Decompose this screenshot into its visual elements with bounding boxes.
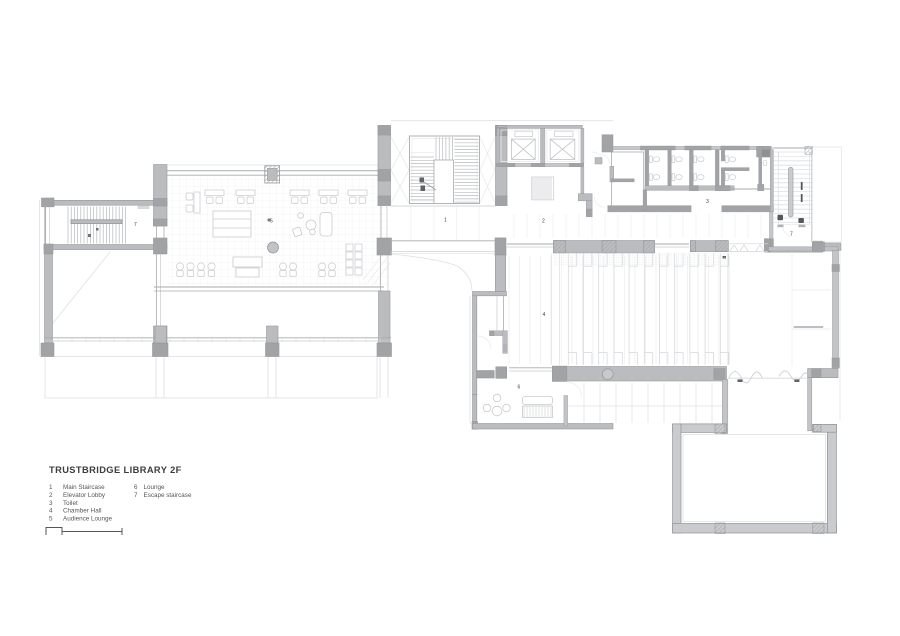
- svg-text:7: 7: [134, 492, 138, 499]
- svg-text:6: 6: [134, 484, 138, 491]
- svg-text:Elevator Lobby: Elevator Lobby: [63, 492, 106, 499]
- svg-text:Audience Lounge: Audience Lounge: [63, 516, 113, 523]
- svg-text:Main Staircase: Main Staircase: [63, 484, 105, 491]
- svg-text:TRUSTBRIDGE LIBRARY 2F: TRUSTBRIDGE LIBRARY 2F: [49, 465, 182, 475]
- svg-text:1: 1: [49, 484, 53, 491]
- svg-text:Toilet: Toilet: [63, 500, 78, 507]
- svg-text:2: 2: [49, 492, 53, 499]
- svg-text:4: 4: [49, 508, 53, 515]
- svg-text:Escape staircase: Escape staircase: [144, 492, 192, 499]
- svg-text:Lounge: Lounge: [144, 484, 166, 491]
- svg-text:5: 5: [270, 219, 273, 225]
- svg-text:3: 3: [706, 199, 709, 205]
- svg-text:Chamber Hall: Chamber Hall: [63, 508, 102, 515]
- svg-text:7: 7: [134, 222, 137, 228]
- svg-text:5: 5: [49, 516, 53, 523]
- svg-text:2: 2: [542, 219, 545, 225]
- svg-text:1: 1: [444, 218, 447, 224]
- svg-text:3: 3: [49, 500, 53, 507]
- svg-text:6: 6: [518, 385, 521, 391]
- svg-text:7: 7: [790, 232, 793, 238]
- svg-text:4: 4: [543, 312, 546, 318]
